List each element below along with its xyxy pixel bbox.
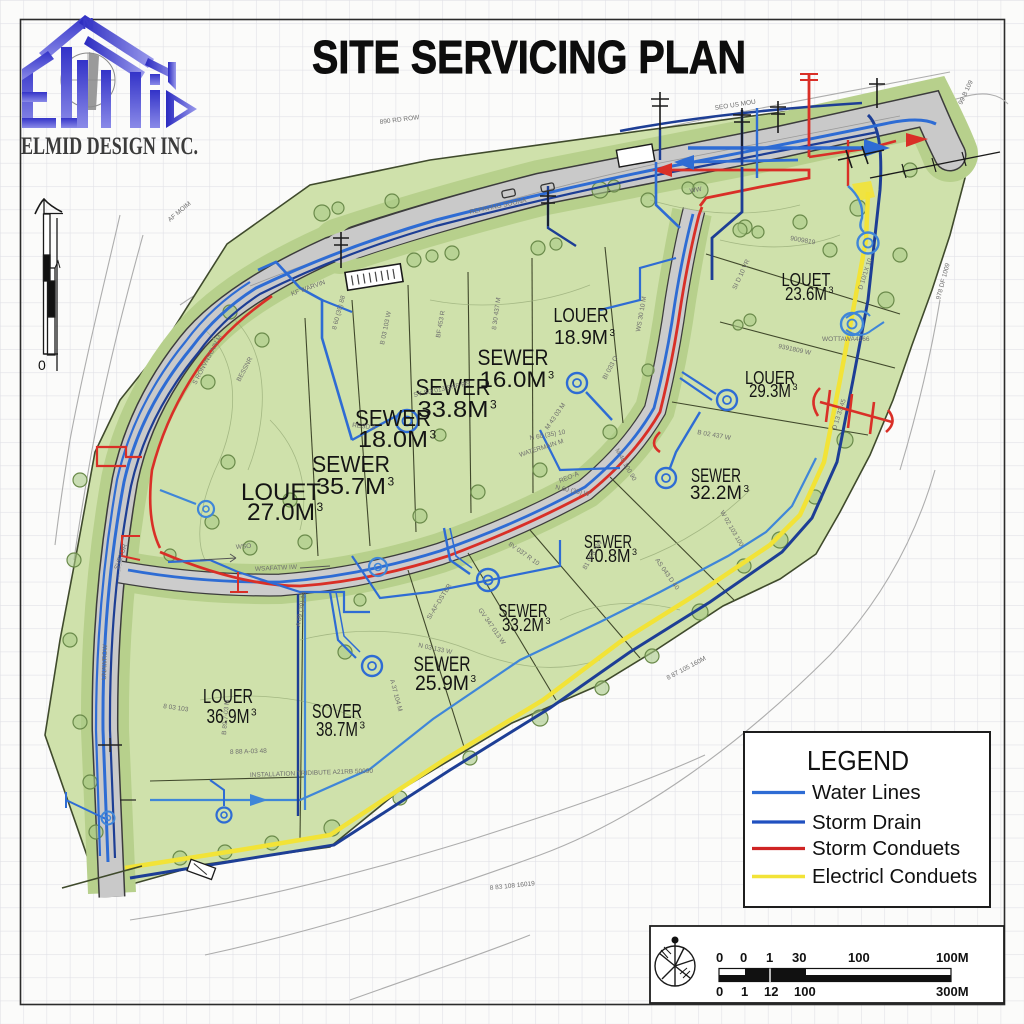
svg-text:18.9M: 18.9M xyxy=(554,326,608,349)
svg-text:16.0M: 16.0M xyxy=(480,367,547,392)
svg-text:3: 3 xyxy=(632,547,637,557)
svg-text:12: 12 xyxy=(764,984,778,999)
svg-text:33.2M: 33.2M xyxy=(502,615,544,635)
svg-text:100M: 100M xyxy=(936,950,969,965)
svg-text:23.6M: 23.6M xyxy=(785,284,827,304)
svg-text:Water Lines: Water Lines xyxy=(812,781,921,804)
svg-text:WOTTAWA4166: WOTTAWA4166 xyxy=(822,336,870,343)
svg-text:3: 3 xyxy=(360,720,366,731)
svg-text:ELMID DESIGN INC.: ELMID DESIGN INC. xyxy=(21,133,198,160)
svg-text:3: 3 xyxy=(317,500,324,514)
svg-text:N: N xyxy=(82,16,94,33)
svg-text:3: 3 xyxy=(744,484,750,495)
svg-text:LEGEND: LEGEND xyxy=(807,745,909,776)
svg-text:0: 0 xyxy=(716,984,723,999)
svg-text:WSO: WSO xyxy=(236,543,252,551)
svg-text:3: 3 xyxy=(793,382,798,392)
svg-text:3: 3 xyxy=(388,474,395,488)
svg-text:100: 100 xyxy=(848,950,870,965)
svg-text:0: 0 xyxy=(716,950,723,965)
svg-text:3: 3 xyxy=(251,707,257,718)
svg-text:LOUER: LOUER xyxy=(554,304,609,327)
svg-text:UNAWROW: UNAWROW xyxy=(101,643,109,680)
svg-text:3: 3 xyxy=(490,397,497,411)
svg-text:Storm Drain: Storm Drain xyxy=(812,811,921,834)
svg-text:35.7M: 35.7M xyxy=(316,473,386,499)
svg-text:3: 3 xyxy=(610,328,616,339)
svg-text:Electricl Conduets: Electricl Conduets xyxy=(812,865,977,888)
svg-text:100: 100 xyxy=(794,984,816,999)
svg-text:32.2M: 32.2M xyxy=(690,483,742,504)
svg-text:Storm Conduets: Storm Conduets xyxy=(812,837,960,860)
svg-text:29.3M: 29.3M xyxy=(749,381,791,401)
svg-text:300M: 300M xyxy=(936,984,969,999)
svg-text:25.9M: 25.9M xyxy=(415,672,469,695)
svg-text:SITE SERVICING PLAN: SITE SERVICING PLAN xyxy=(312,31,746,83)
svg-text:30: 30 xyxy=(792,950,806,965)
svg-text:3: 3 xyxy=(829,285,834,295)
svg-text:0: 0 xyxy=(740,950,747,965)
svg-text:3: 3 xyxy=(548,370,554,382)
svg-text:3: 3 xyxy=(471,674,477,685)
svg-text:3: 3 xyxy=(546,616,551,626)
svg-text:8 88 A-03 48: 8 88 A-03 48 xyxy=(230,748,267,756)
svg-text:27.0M: 27.0M xyxy=(247,499,315,526)
svg-text:1: 1 xyxy=(766,950,773,965)
svg-text:0: 0 xyxy=(38,357,46,373)
svg-text:38.7M: 38.7M xyxy=(316,719,358,741)
svg-text:33.8M: 33.8M xyxy=(418,396,489,422)
svg-text:1: 1 xyxy=(741,984,748,999)
svg-text:3: 3 xyxy=(430,427,437,441)
